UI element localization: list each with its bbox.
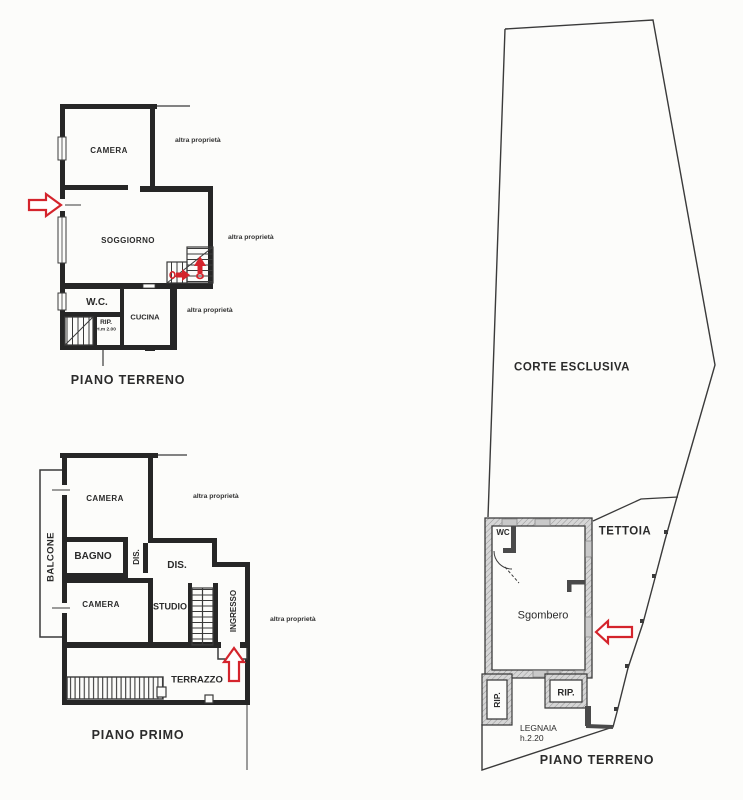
room-label-wc: W.C.	[86, 298, 108, 308]
neighbor-property-label: altra proprietà	[175, 137, 221, 145]
neighbor-property-label: altra proprietà	[228, 234, 274, 242]
room-label-rip-right: RIP.	[557, 688, 574, 698]
room-label-camera-top: CAMERA	[86, 495, 124, 503]
neighbor-property-label: altra proprietà	[193, 493, 239, 501]
room-label-ingresso: INGRESSO	[230, 590, 238, 632]
room-label-dis-corridor: DIS.	[133, 549, 141, 565]
room-label-camera-bottom: CAMERA	[82, 601, 120, 609]
ground-floor-right-plan	[482, 20, 715, 770]
legnaia-height-label: h.2.20	[520, 734, 544, 743]
room-label-cucina: CUCINA	[130, 313, 159, 321]
room-height-note: H.m 2.00	[96, 329, 116, 334]
floor-plan-drawing	[0, 0, 743, 800]
room-label-rip: RIP.	[100, 320, 112, 327]
floor-plan-page: CAMERA SOGGIORNO W.C. CUCINA RIP. H.m 2.…	[0, 0, 743, 800]
room-label-soggiorno: SOGGIORNO	[101, 237, 155, 245]
neighbor-property-label: altra proprietà	[187, 307, 233, 315]
plan-title-first-left: PIANO PRIMO	[92, 729, 185, 742]
plot-boundary	[482, 20, 715, 770]
plan-title-ground-left: PIANO TERRENO	[71, 374, 186, 387]
canopy-boundary	[593, 497, 678, 521]
neighbor-property-label: altra proprietà	[270, 616, 316, 624]
room-label-rip-left: RIP.	[493, 692, 502, 707]
plan-title-ground-right: PIANO TERRENO	[540, 754, 655, 767]
entrance-arrow-icon	[596, 621, 632, 643]
room-label-dis-hall: DIS.	[167, 561, 186, 571]
staircase	[192, 588, 213, 645]
room-label-wc-right: WC	[496, 529, 509, 537]
entrance-arrow-icon	[29, 194, 61, 216]
canopy-label: TETTOIA	[599, 526, 651, 538]
court-label: CORTE ESCLUSIVA	[514, 362, 630, 374]
room-label-bagno: BAGNO	[74, 552, 111, 562]
legnaia-label: LEGNAIA	[520, 724, 557, 733]
room-label-terrazzo: TERRAZZO	[171, 675, 223, 685]
room-label-sgombero: Sgombero	[518, 611, 569, 622]
room-label-balcone: BALCONE	[46, 532, 56, 582]
staircase	[65, 317, 93, 345]
building-walls	[485, 518, 592, 678]
room-label-camera: CAMERA	[90, 147, 128, 155]
room-label-studio: STUDIO	[153, 603, 187, 612]
